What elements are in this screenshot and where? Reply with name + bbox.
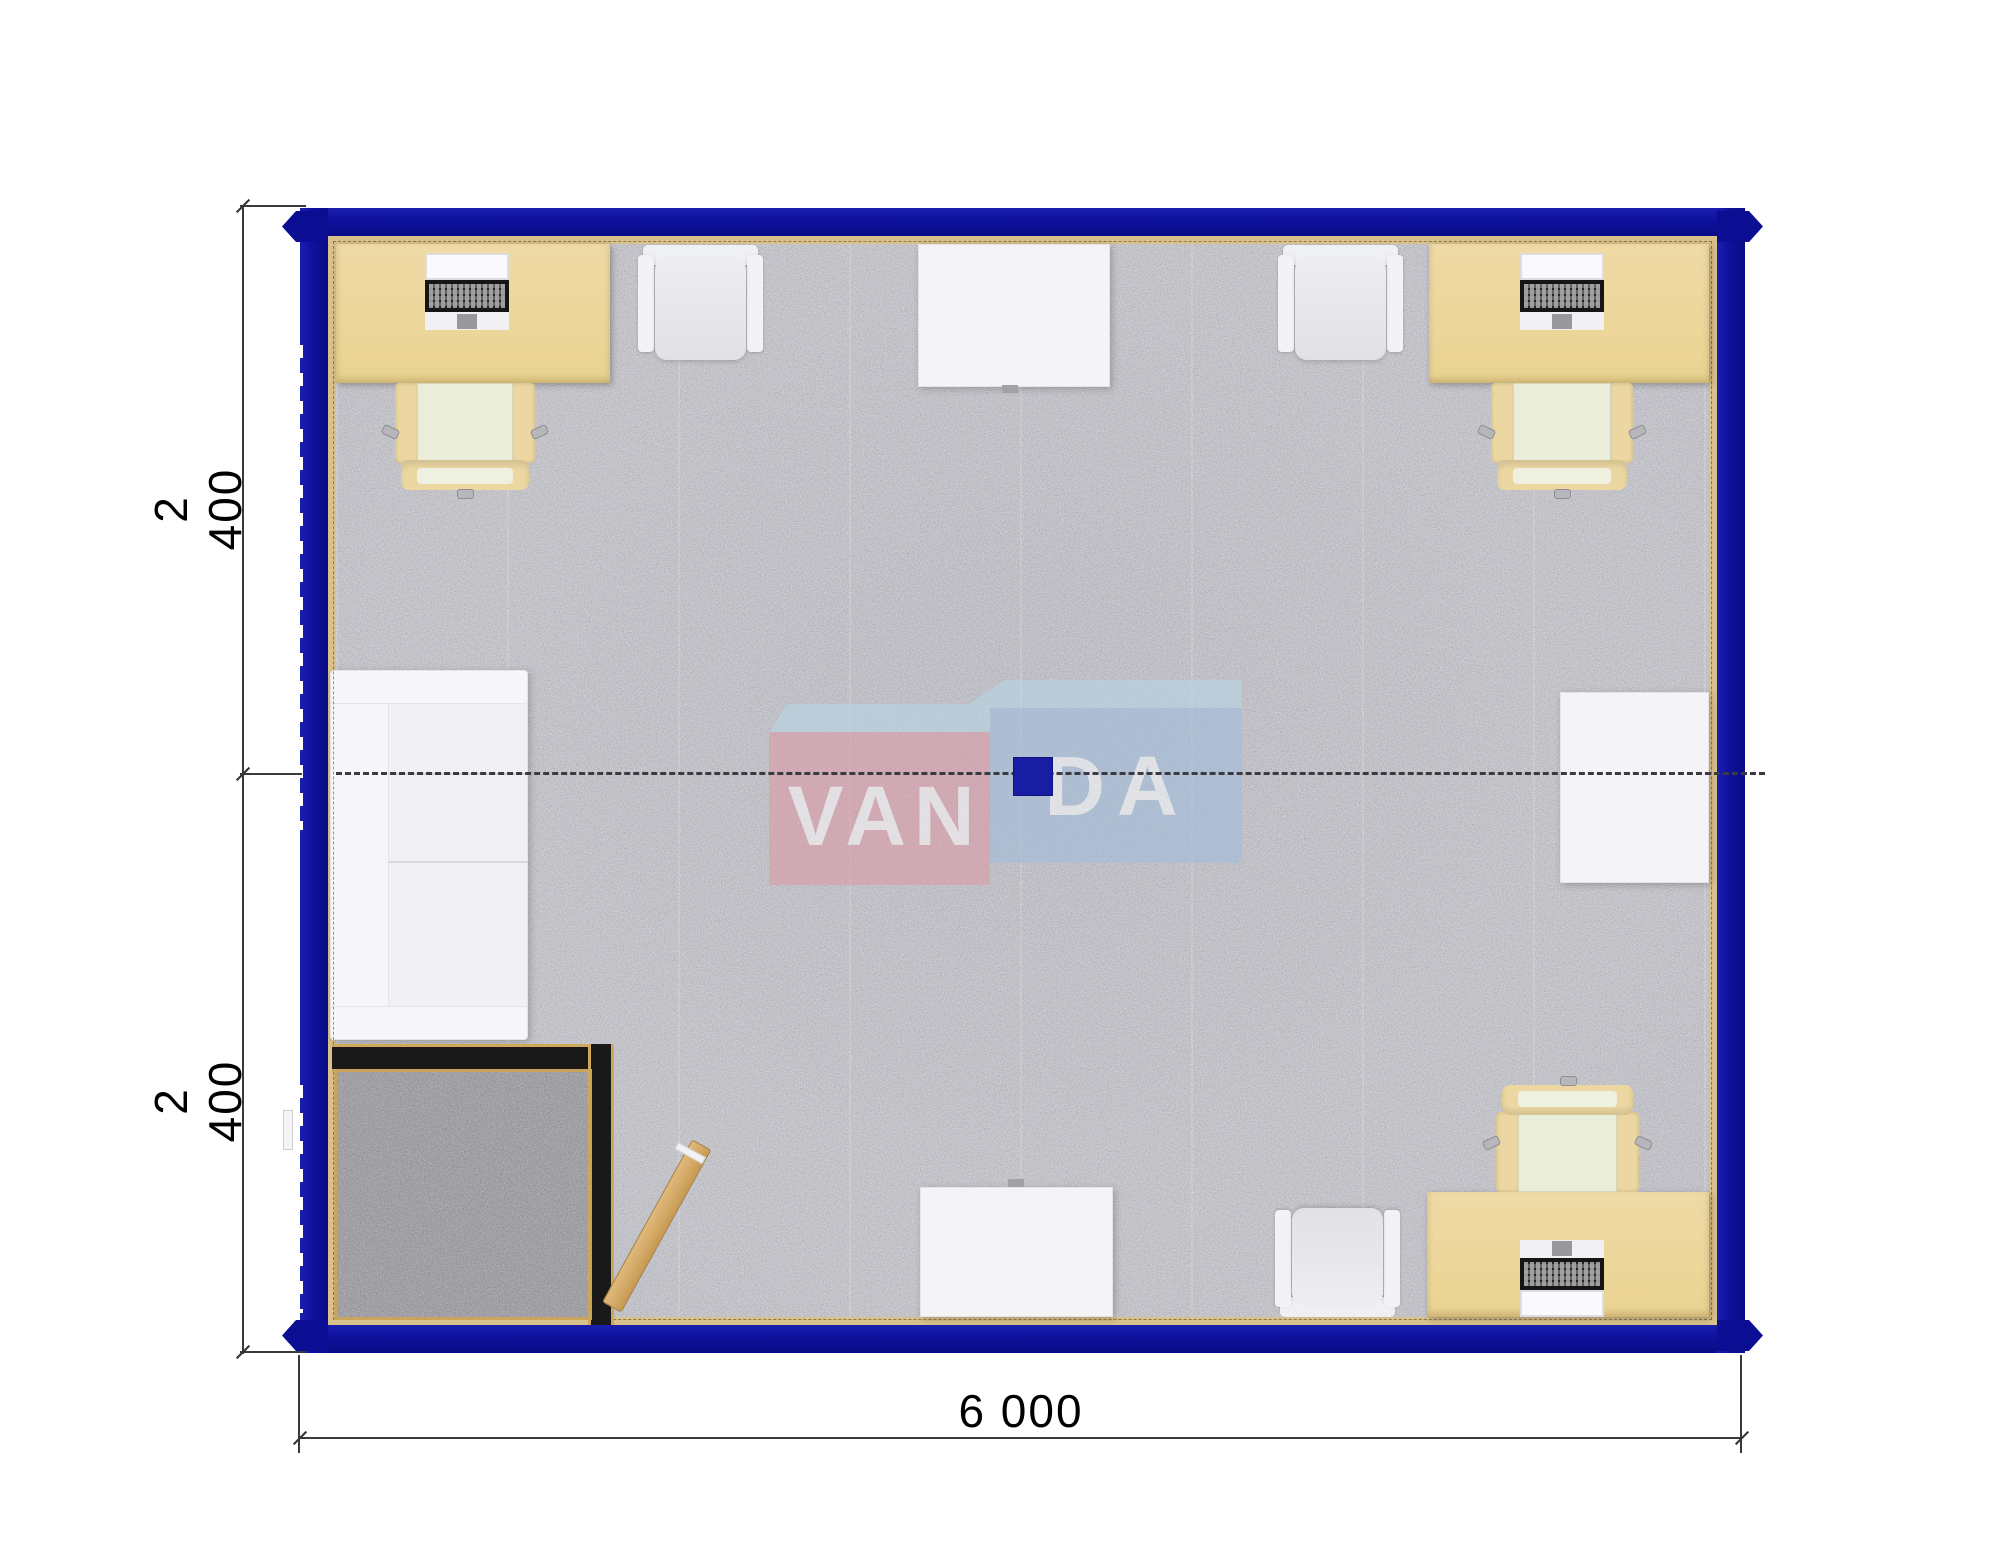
dim-ext-bottom-left [240, 1351, 306, 1353]
side-chair-bottom [1275, 1200, 1400, 1317]
office-chair-top-left [395, 383, 535, 490]
corner-fitting-bottom-left [282, 1320, 328, 1351]
mouse-pad-icon [1552, 1242, 1572, 1257]
exterior-door-handle [283, 1110, 293, 1150]
frame-wall-right [1717, 208, 1745, 1353]
monitor-bottom-right [1520, 1290, 1604, 1317]
mouse-pad-icon [457, 314, 477, 329]
vestibule-floor-trim [334, 1069, 592, 1320]
chair-caster [1560, 1076, 1577, 1086]
chair-caster [457, 489, 474, 499]
frame-wall-top [300, 208, 1745, 236]
dim-label-left-upper: 2 400 [144, 447, 252, 571]
window-marking-left-wall [295, 345, 303, 830]
frame-wall-left [300, 208, 328, 1353]
system-unit-top-right [1520, 312, 1604, 330]
chair-seat [1292, 1208, 1383, 1304]
vestibule-wall-top [332, 1044, 614, 1072]
chair-caster [1554, 489, 1571, 499]
table-leg [1008, 1179, 1024, 1187]
monitor-top-left [425, 253, 509, 280]
mouse-pad-icon [1552, 314, 1572, 329]
corner-fitting-bottom-right [1717, 1320, 1763, 1351]
table-leg [1002, 385, 1018, 393]
corner-fitting-top-right [1717, 211, 1763, 242]
chair-backrest [401, 460, 529, 490]
chair-backrest-pad [1518, 1091, 1617, 1107]
support-column [1013, 757, 1053, 796]
office-chair-bottom-right [1496, 1085, 1639, 1192]
chair-armrest [1275, 1210, 1291, 1307]
chair-seat [655, 258, 746, 360]
chair-armrest [1387, 255, 1403, 352]
chair-armrest [1615, 1112, 1639, 1192]
chair-armrest [1609, 383, 1633, 463]
computer-top-left [425, 253, 509, 330]
computer-top-right [1520, 253, 1604, 330]
chair-backrest [1497, 460, 1627, 490]
chair-seat [1513, 383, 1611, 467]
chair-backrest [1502, 1085, 1633, 1115]
computer-bottom-right [1520, 1240, 1604, 1317]
chair-seat [1518, 1108, 1617, 1192]
chair-seat [417, 383, 513, 467]
chair-armrest [747, 255, 763, 352]
side-chair-top-left [638, 245, 763, 367]
monitor-top-right [1520, 253, 1604, 280]
chair-armrest [1278, 255, 1294, 352]
chair-armrest [638, 255, 654, 352]
side-chair-top-right [1278, 245, 1403, 367]
dim-ext-top-left [240, 205, 306, 207]
corner-fitting-top-left [282, 211, 328, 242]
dim-label-bottom: 6 000 [931, 1384, 1111, 1438]
chair-armrest [511, 383, 535, 463]
chair-armrest [395, 383, 419, 463]
system-unit-top-left [425, 312, 509, 330]
floor-plan-canvas: VAN DA [0, 0, 2000, 1561]
chair-seat [1295, 258, 1386, 360]
dim-label-left-lower: 2 400 [144, 1039, 252, 1163]
keyboard-top-left [425, 280, 509, 312]
keyboard-bottom-right [1520, 1258, 1604, 1290]
office-chair-top-right [1491, 383, 1633, 490]
chair-armrest [1491, 383, 1515, 463]
keyboard-top-right [1520, 280, 1604, 312]
dim-line-left [242, 206, 244, 1354]
system-unit-bottom-right [1520, 1240, 1604, 1258]
chair-armrest [1496, 1112, 1520, 1192]
chair-backrest-pad [1513, 468, 1611, 484]
frame-wall-bottom [300, 1325, 1745, 1353]
exterior-door-marking [295, 1085, 303, 1313]
chair-armrest [1384, 1210, 1400, 1307]
dim-ext-mid-left [240, 773, 302, 775]
chair-backrest-pad [417, 468, 513, 484]
